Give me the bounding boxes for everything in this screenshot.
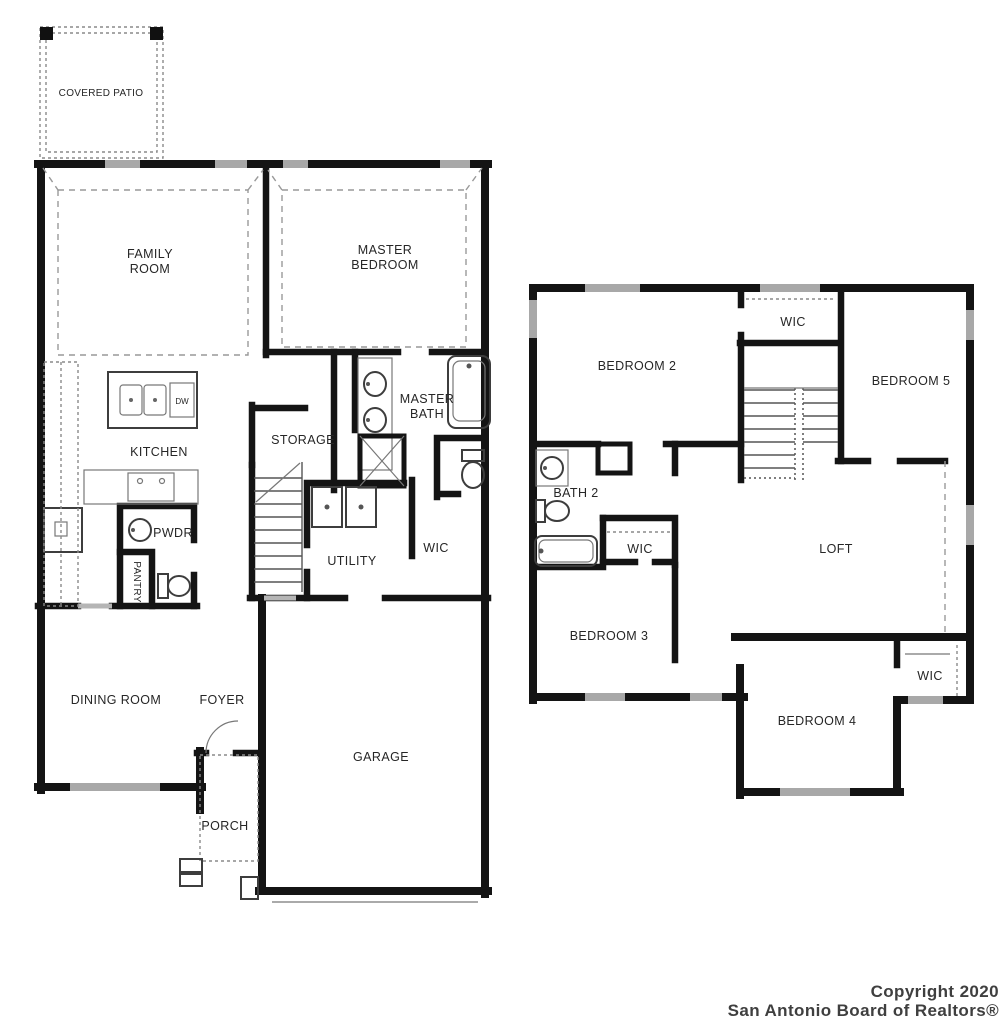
storage-label: STORAGE bbox=[271, 433, 335, 447]
floor-plan-page: COVERED PATIO FAMILY ROOM MASTER BEDROOM… bbox=[0, 0, 1005, 1024]
bath2-label: BATH 2 bbox=[553, 486, 598, 500]
bath2-sink bbox=[536, 450, 568, 486]
family-room-label: ROOM bbox=[130, 262, 171, 276]
master-toilet bbox=[462, 450, 484, 488]
stairs-first-floor bbox=[254, 462, 302, 592]
garage-label: GARAGE bbox=[353, 750, 409, 764]
loft-label: LOFT bbox=[819, 542, 853, 556]
dishwasher-label: DW bbox=[175, 397, 189, 406]
washer-dryer bbox=[312, 487, 376, 527]
patio-post bbox=[40, 27, 53, 40]
wic-upper-label: WIC bbox=[780, 315, 806, 329]
copyright-line2: San Antonio Board of Realtors® bbox=[728, 1001, 999, 1020]
powder-sink bbox=[129, 519, 151, 541]
master-bedroom-label: MASTER bbox=[358, 243, 413, 257]
master-bath-label: MASTER bbox=[400, 392, 455, 406]
first-floor-labels: COVERED PATIO FAMILY ROOM MASTER BEDROOM… bbox=[59, 88, 455, 833]
bedroom2-label: BEDROOM 2 bbox=[598, 359, 677, 373]
kitchen-label: KITCHEN bbox=[130, 445, 188, 459]
bedroom5-label: BEDROOM 5 bbox=[872, 374, 951, 388]
porch bbox=[180, 721, 258, 886]
wic-middle-label: WIC bbox=[627, 542, 653, 556]
second-floor-plan: BEDROOM 2 WIC BEDROOM 5 BATH 2 WIC LOFT … bbox=[533, 288, 970, 795]
floor-plan-image: COVERED PATIO FAMILY ROOM MASTER BEDROOM… bbox=[0, 0, 1005, 1024]
pantry-label: PANTRY bbox=[131, 561, 142, 602]
family-room-label: FAMILY bbox=[127, 247, 173, 261]
porch-label: PORCH bbox=[201, 819, 248, 833]
powder-toilet bbox=[158, 574, 190, 598]
bath2-toilet bbox=[536, 500, 569, 522]
powder-label: PWDR bbox=[153, 526, 193, 540]
covered-patio-label: COVERED PATIO bbox=[59, 88, 144, 99]
stairs-second-floor bbox=[744, 388, 838, 480]
refrigerator bbox=[44, 508, 82, 552]
master-bath-label: BATH bbox=[410, 407, 444, 421]
dining-room-label: DINING ROOM bbox=[71, 693, 162, 707]
second-floor-interior-walls bbox=[533, 288, 945, 665]
second-floor-labels: BEDROOM 2 WIC BEDROOM 5 BATH 2 WIC LOFT … bbox=[553, 315, 950, 728]
shower bbox=[360, 436, 404, 486]
foyer-label: FOYER bbox=[199, 693, 244, 707]
bath2-tub bbox=[535, 536, 597, 566]
master-bedroom-label: BEDROOM bbox=[351, 258, 418, 272]
bedroom3-label: BEDROOM 3 bbox=[570, 629, 649, 643]
kitchen-counter bbox=[84, 470, 198, 504]
copyright-line1: Copyright 2020 bbox=[728, 982, 999, 1001]
patio-post bbox=[150, 27, 163, 40]
bedroom4-label: BEDROOM 4 bbox=[778, 714, 857, 728]
copyright-watermark: Copyright 2020 San Antonio Board of Real… bbox=[728, 982, 999, 1020]
wic-lower-label: WIC bbox=[917, 669, 943, 683]
wic-label: WIC bbox=[423, 541, 449, 555]
utility-label: UTILITY bbox=[327, 554, 377, 568]
kitchen-cabinets bbox=[44, 362, 78, 606]
first-floor-plan: COVERED PATIO FAMILY ROOM MASTER BEDROOM… bbox=[38, 27, 490, 902]
